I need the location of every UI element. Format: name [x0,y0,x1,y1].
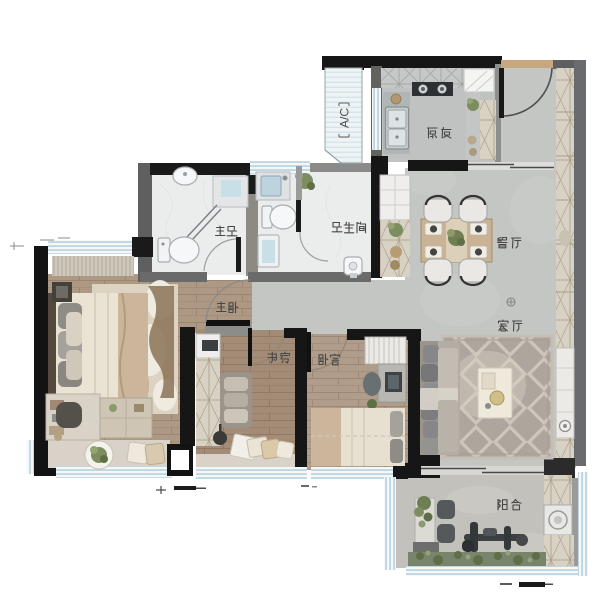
svg-text:A/C: A/C [338,108,352,128]
